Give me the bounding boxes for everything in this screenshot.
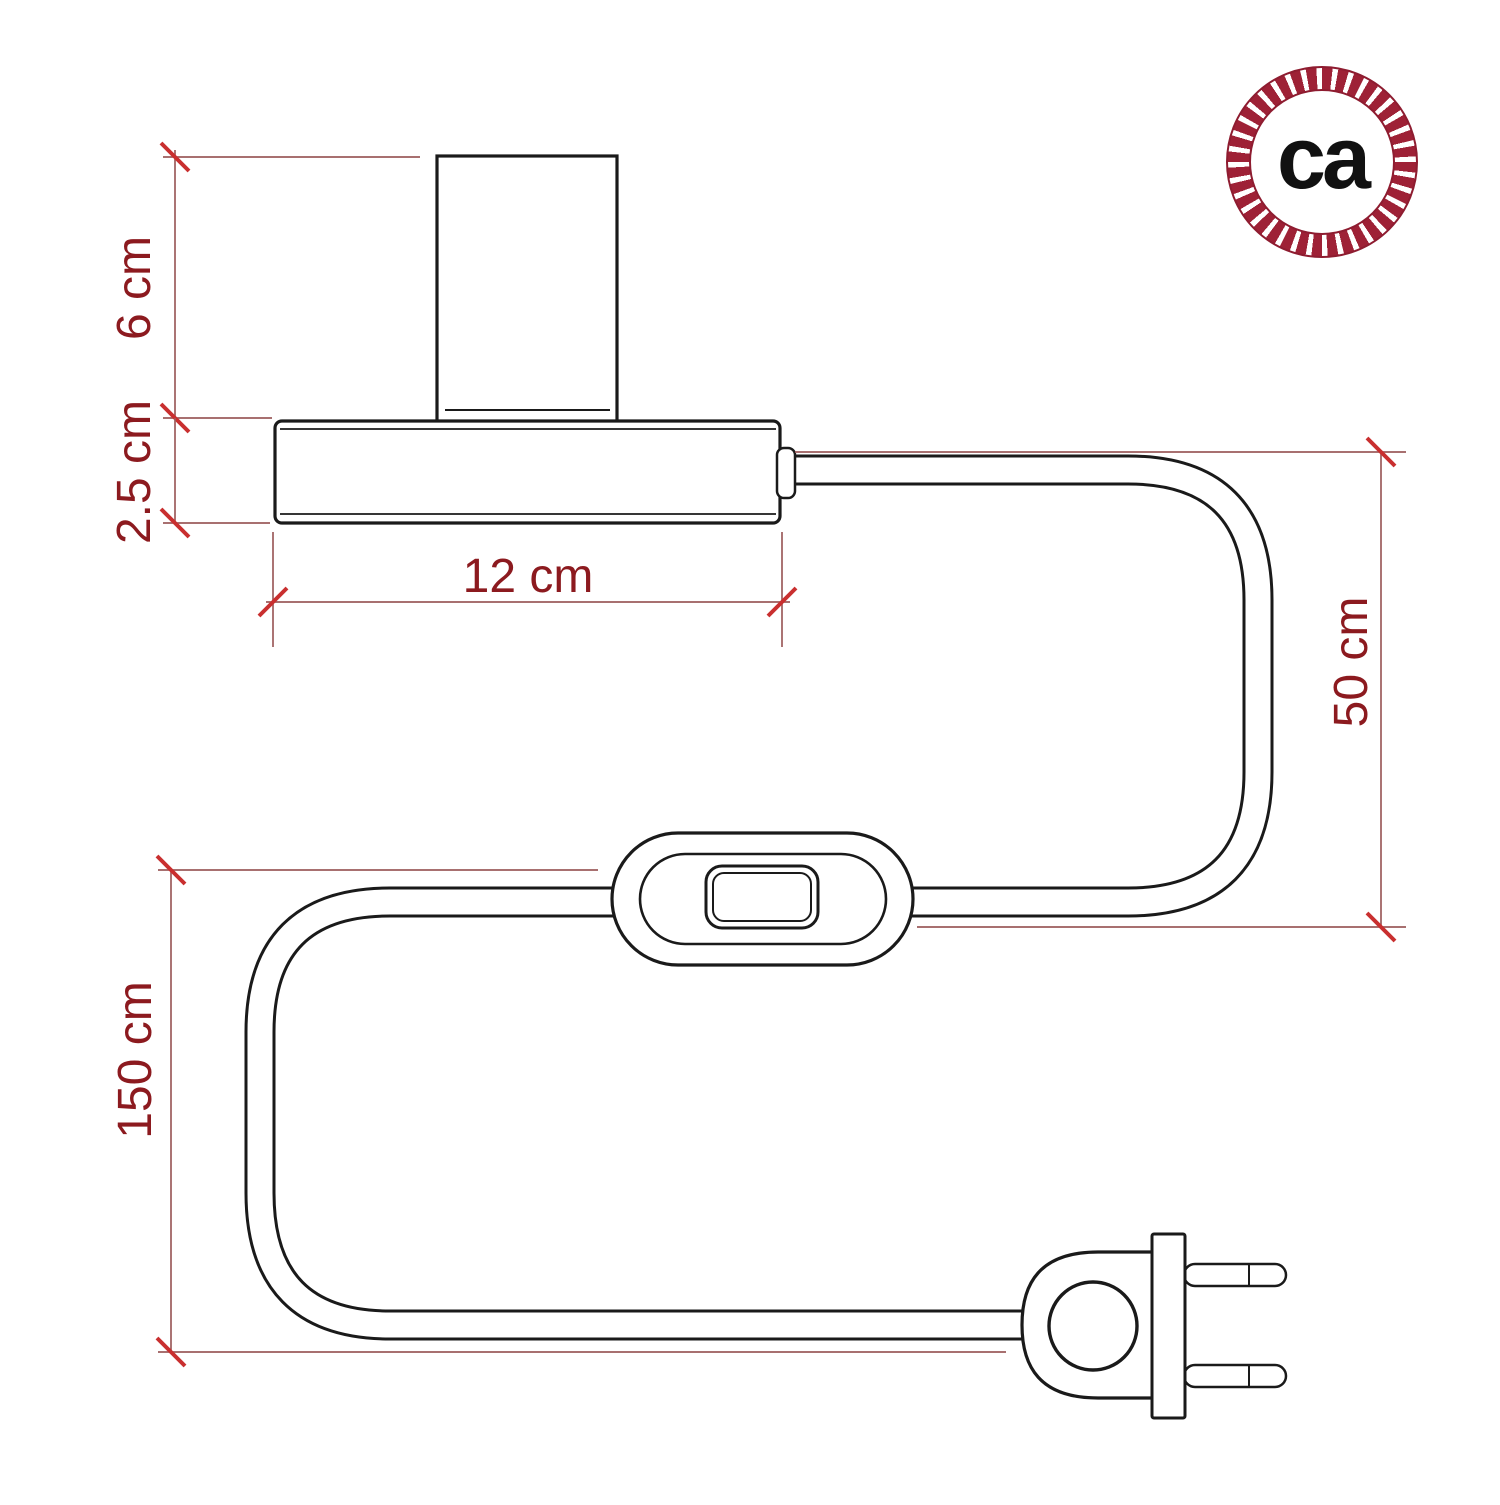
dimension-label: 50 cm (1325, 597, 1378, 728)
dimension-label: 12 cm (463, 550, 594, 603)
cable-connector (777, 448, 795, 498)
plug-face-plate (1152, 1234, 1185, 1418)
dimension-socket-height: 6 cm (108, 143, 420, 432)
logo-inner-circle: ca (1249, 89, 1395, 235)
dimension-label: 2.5 cm (108, 400, 161, 544)
two-prong-plug (1022, 1234, 1286, 1418)
plug-screw-circle (1049, 1282, 1137, 1370)
dimension-label: 150 cm (109, 981, 162, 1138)
inline-switch (612, 833, 913, 965)
plug-prong-top (1184, 1264, 1286, 1286)
brand-logo: ca (1226, 66, 1418, 258)
logo-text: ca (1277, 114, 1367, 202)
dimension-base-thickness: 2.5 cm (108, 400, 270, 544)
lamp-socket (437, 156, 617, 422)
dimension-label: 6 cm (108, 236, 161, 340)
switch-button (706, 866, 818, 928)
dimension-base-width: 12 cm (259, 532, 796, 647)
lamp-base (275, 421, 795, 523)
plug-prong-bottom (1184, 1365, 1286, 1387)
